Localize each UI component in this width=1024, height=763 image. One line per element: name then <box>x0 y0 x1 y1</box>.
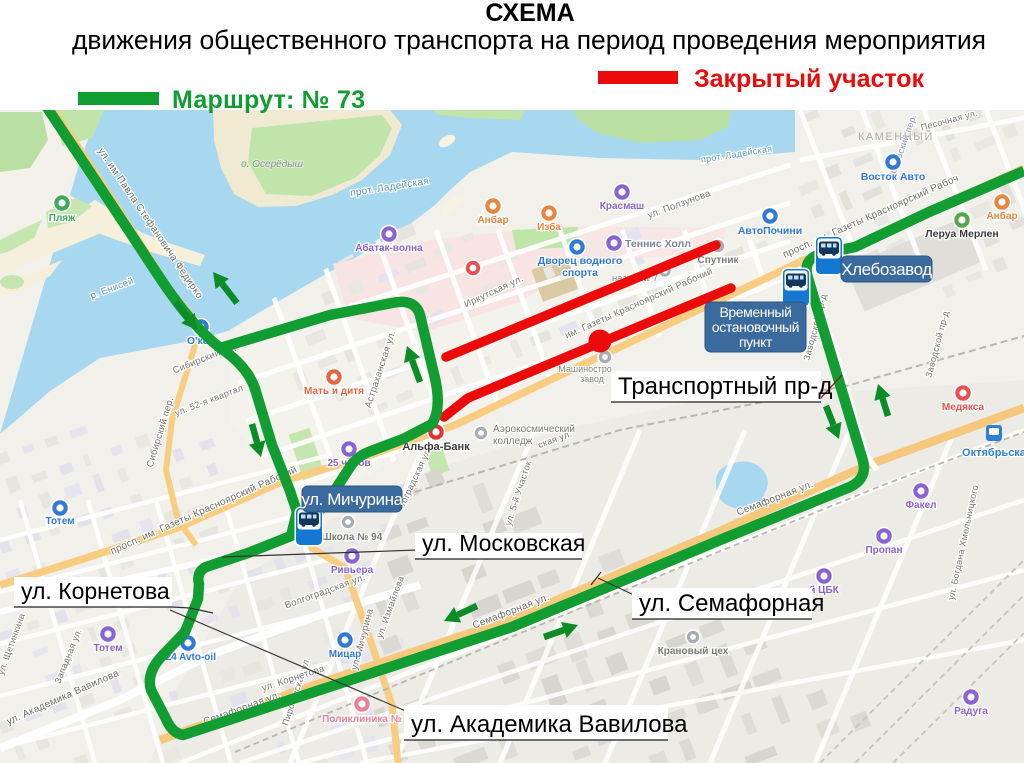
svg-text:Анбар: Анбар <box>477 214 508 226</box>
svg-text:Абатак-волна: Абатак-волна <box>355 242 423 254</box>
svg-text:Транспортный пр-д: Транспортный пр-д <box>618 373 832 400</box>
svg-text:Изба: Изба <box>537 221 561 233</box>
svg-text:пункт: пункт <box>739 334 773 350</box>
svg-text:колледж: колледж <box>493 436 533 447</box>
svg-text:АвтоПочини: АвтоПочини <box>738 225 802 237</box>
svg-text:Тотем: Тотем <box>93 643 122 654</box>
svg-text:движения общественного транспо: движения общественного транспорта на пер… <box>72 25 986 55</box>
svg-text:Красмаш: Красмаш <box>600 201 645 212</box>
svg-text:Анбар: Анбар <box>986 210 1017 222</box>
svg-text:Крановый цех: Крановый цех <box>658 646 729 657</box>
svg-text:ул. Академика Вавилова: ул. Академика Вавилова <box>411 711 688 738</box>
svg-text:Мицар: Мицар <box>329 649 361 660</box>
svg-text:Машиностро: Машиностро <box>558 364 611 374</box>
svg-text:Тотем: Тотем <box>45 516 74 527</box>
svg-text:Спутник: Спутник <box>697 255 739 266</box>
svg-text:Дворец водного: Дворец водного <box>538 255 623 267</box>
svg-text:ул. Семафорная: ул. Семафорная <box>639 590 824 617</box>
svg-text:завод: завод <box>580 374 605 384</box>
svg-text:остановочный: остановочный <box>712 319 799 335</box>
svg-text:Ривьера: Ривьера <box>331 565 374 576</box>
svg-text:КАМЕННЫЙ: КАМЕННЫЙ <box>858 130 934 143</box>
svg-text:Закрытый участок: Закрытый участок <box>694 65 924 93</box>
svg-text:Леруа Мерлен: Леруа Мерлен <box>925 228 998 240</box>
svg-text:Мать и дитя: Мать и дитя <box>304 386 364 397</box>
svg-text:СХЕМА: СХЕМА <box>485 0 574 27</box>
svg-text:Факел: Факел <box>905 500 936 511</box>
svg-text:Школа № 94: Школа № 94 <box>322 532 383 543</box>
svg-text:Поликлиника №: Поликлиника № <box>322 714 402 725</box>
svg-text:спорта: спорта <box>562 267 598 279</box>
svg-text:Октябрьска: Октябрьска <box>962 447 1024 459</box>
svg-text:Пропан: Пропан <box>865 545 902 556</box>
svg-text:Альфа-Банк: Альфа-Банк <box>402 441 470 453</box>
svg-text:Восток Авто: Восток Авто <box>861 171 926 183</box>
svg-text:Медякса: Медякса <box>942 402 985 413</box>
svg-text:Хлебозавод: Хлебозавод <box>841 260 932 279</box>
svg-text:Маршрут: № 73: Маршрут: № 73 <box>172 86 365 114</box>
svg-text:Радуга: Радуга <box>954 706 988 717</box>
svg-text:о. Осерёдыш: о. Осерёдыш <box>241 159 303 170</box>
svg-text:ул. Корнетова: ул. Корнетова <box>21 578 170 604</box>
svg-text:Теннис Холл: Теннис Холл <box>625 238 691 250</box>
svg-text:Временный: Временный <box>719 304 791 320</box>
svg-text:Пляж: Пляж <box>49 213 76 224</box>
svg-text:ул. Мичурина: ул. Мичурина <box>301 490 403 509</box>
svg-text:ул. Московская: ул. Московская <box>422 530 585 556</box>
svg-text:Аэрокосмический: Аэрокосмический <box>493 424 575 435</box>
